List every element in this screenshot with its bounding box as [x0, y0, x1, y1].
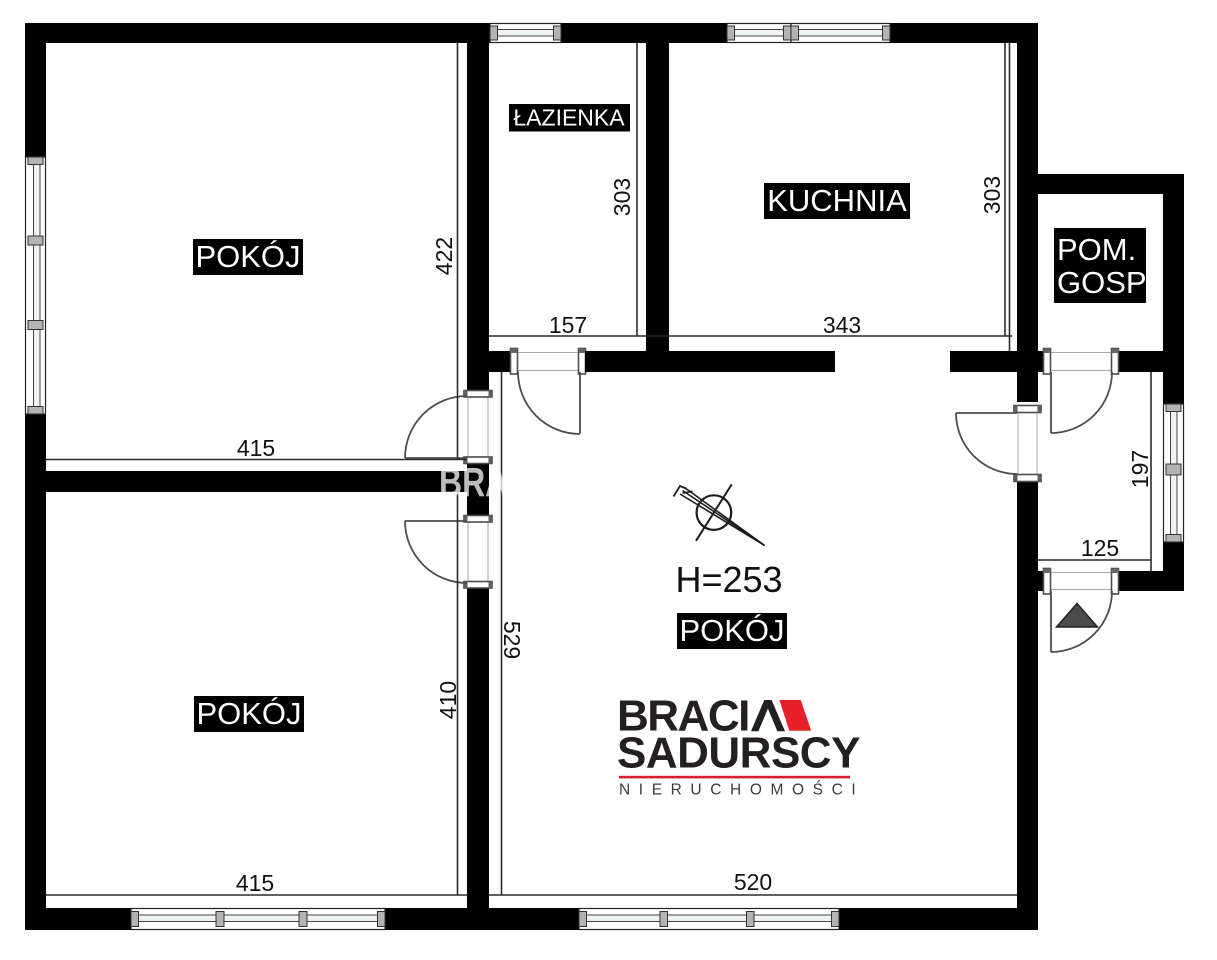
svg-text:POKÓJ: POKÓJ	[196, 696, 301, 731]
svg-text:410: 410	[435, 681, 461, 719]
svg-text:197: 197	[1127, 450, 1153, 488]
svg-text:415: 415	[237, 435, 275, 461]
svg-text:BRACIA: BRACIA	[439, 459, 563, 505]
svg-text:POKÓJ: POKÓJ	[679, 613, 784, 648]
svg-text:303: 303	[609, 178, 635, 216]
svg-text:POM.: POM.	[1057, 232, 1136, 267]
svg-text:SADURSCY: SADURSCY	[617, 729, 860, 778]
svg-text:ŁAZIENKA: ŁAZIENKA	[513, 105, 625, 131]
svg-text:NIERUCHOMOŚCI: NIERUCHOMOŚCI	[619, 781, 864, 799]
svg-text:125: 125	[1081, 535, 1119, 561]
svg-text:343: 343	[823, 312, 861, 338]
svg-text:415: 415	[236, 870, 274, 896]
svg-text:GOSP: GOSP	[1057, 265, 1147, 300]
svg-text:H=253: H=253	[675, 559, 782, 600]
svg-text:157: 157	[549, 312, 587, 338]
svg-text:422: 422	[431, 237, 457, 275]
svg-text:529: 529	[499, 621, 525, 659]
svg-text:520: 520	[734, 869, 772, 895]
svg-text:303: 303	[979, 176, 1005, 214]
svg-text:KUCHNIA: KUCHNIA	[767, 183, 907, 218]
svg-text:POKÓJ: POKÓJ	[195, 239, 300, 274]
